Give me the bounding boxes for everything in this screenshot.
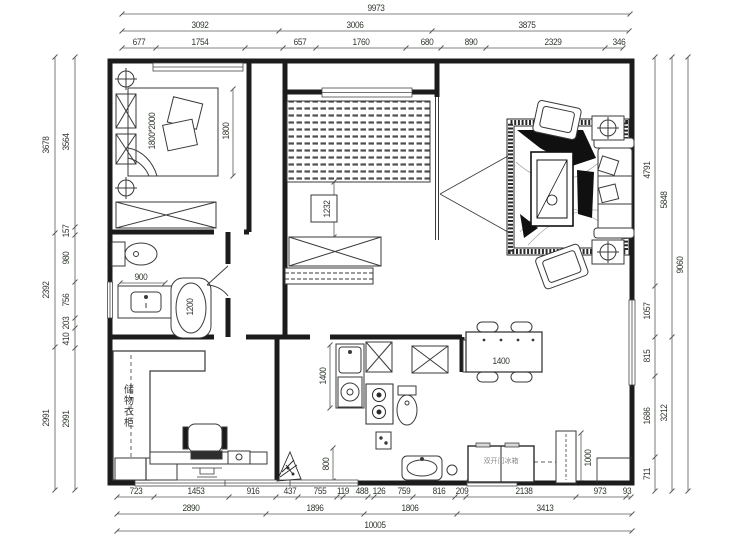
dim-right-inner-1: 4791 — [642, 162, 652, 179]
dim-bottom1-3: 916 — [247, 486, 260, 496]
toilet — [112, 242, 157, 266]
dim-cabinet: 800 — [321, 458, 331, 471]
dim-right-mid-2: 3212 — [659, 405, 669, 422]
tatami-bed — [287, 101, 430, 182]
dim-right-inner-4: 1686 — [642, 408, 652, 425]
dim-bottom1-7: 488 — [356, 486, 369, 496]
dim-left-outer-2: 2392 — [41, 282, 51, 299]
dim-top2-2: 3006 — [347, 20, 364, 30]
dim-left-inner-2: 157 — [61, 225, 71, 238]
coffee-table — [531, 152, 573, 226]
dim-top3-4: 1760 — [353, 37, 370, 47]
dim-left-inner-5: 203 — [61, 317, 71, 330]
toilet-kitchen — [397, 386, 417, 425]
dim-counter: 1400 — [318, 368, 328, 385]
dim-right-overall: 9060 — [675, 257, 685, 274]
dim-left-inner-1: 3564 — [61, 134, 71, 151]
dim-bottom2-2: 1896 — [307, 503, 324, 513]
dim-dining-table: 1400 — [493, 356, 510, 366]
dim-bottom1-2: 1453 — [188, 486, 205, 496]
dim-vanity: 900 — [135, 272, 148, 282]
dim-right-inner-2: 1057 — [642, 303, 652, 320]
dim-bottom1-6: 119 — [337, 486, 349, 496]
dim-bottom1-13: 973 — [594, 486, 607, 496]
dim-top3-7: 2329 — [545, 37, 562, 47]
dim-bottom1-10: 816 — [433, 486, 446, 496]
dim-bottom1-11: 209 — [456, 486, 469, 496]
dim-left-inner-7: 2991 — [61, 411, 71, 428]
fridge-label: 双开门冰箱 — [484, 456, 519, 466]
dim-right-inner-3: 815 — [642, 350, 652, 363]
closet-label: 储物衣柜 — [120, 384, 135, 428]
dim-top2-1: 3092 — [192, 20, 209, 30]
dining-table — [466, 322, 542, 382]
dim-left-outer-3: 2991 — [41, 410, 51, 427]
dim-bottom1-4: 437 — [284, 486, 297, 496]
sofa — [594, 138, 634, 238]
dim-bottom1-9: 759 — [398, 486, 411, 496]
dim-bottom2-4: 3413 — [537, 503, 554, 513]
wardrobe-bedroom1 — [116, 202, 216, 228]
dim-left-inner-6: 410 — [61, 333, 71, 346]
dim-bottom1-1: 723 — [130, 486, 143, 496]
dim-top3-2: 1754 — [192, 37, 209, 47]
kitchen-counter — [336, 344, 364, 408]
dim-top3-6: 890 — [465, 37, 478, 47]
dim-left-inner-4: 756 — [61, 294, 71, 307]
dim-top2-3: 3875 — [519, 20, 536, 30]
floor-plan: 9973 3092 3006 3875 677 1754 657 1760 68… — [0, 0, 740, 555]
stove — [366, 384, 393, 424]
tv-unit — [285, 195, 381, 284]
dim-fridge-width: 1000 — [583, 450, 593, 467]
dim-bottom1-8: 126 — [373, 486, 386, 496]
dim-left-inner-3: 980 — [61, 252, 71, 265]
dim-top3-8: 346 — [613, 37, 626, 47]
dim-bottom1-5: 755 — [314, 486, 327, 496]
dim-left-outer-1: 3678 — [41, 137, 51, 154]
dim-bottom2-3: 1806 — [402, 503, 419, 513]
dim-bottom2-1: 2890 — [183, 503, 200, 513]
kitchen-sink — [376, 432, 457, 480]
entry-cabinet — [556, 431, 632, 483]
dim-bathtub: 1200 — [185, 299, 195, 316]
dim-top-overall: 9973 — [368, 3, 385, 13]
dim-top3-1: 677 — [133, 37, 146, 47]
bed — [128, 88, 218, 176]
dim-bottom1-14: 93 — [623, 486, 631, 496]
bed-size-label: 1800*2000 — [147, 113, 157, 150]
dim-right-inner-5: 711 — [642, 468, 652, 480]
dim-right-mid-1: 5848 — [659, 192, 669, 209]
dim-top3-3: 657 — [294, 37, 307, 47]
dim-top3-5: 680 — [421, 37, 434, 47]
dim-bottom1-12: 2138 — [516, 486, 533, 496]
dim-tv-wall: 1232 — [322, 201, 332, 218]
dim-bottom-overall: 10005 — [364, 520, 385, 530]
floor-plan-drawing — [0, 0, 740, 555]
plant — [277, 452, 301, 481]
partition-and-opening — [436, 97, 509, 240]
dim-bed-width: 1800 — [221, 123, 231, 140]
